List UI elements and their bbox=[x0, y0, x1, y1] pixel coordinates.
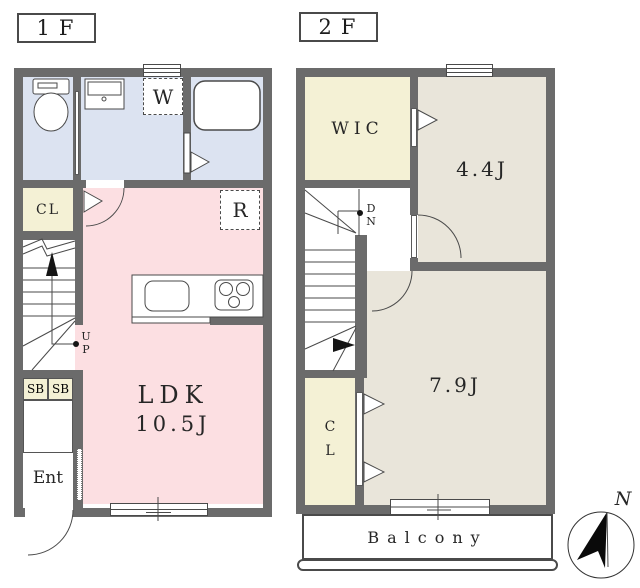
wic-door-leaf bbox=[411, 108, 417, 147]
balcony-edge bbox=[297, 559, 558, 571]
closet-1f-label: CL bbox=[23, 188, 73, 231]
room-toilet bbox=[23, 77, 73, 180]
room-ldk bbox=[83, 188, 263, 504]
wall-segment bbox=[355, 235, 367, 378]
compass-north-label: N bbox=[608, 486, 638, 512]
bedroom-large-area-label: 7.9J bbox=[364, 365, 546, 405]
wall-segment bbox=[14, 180, 86, 188]
wall-segment bbox=[296, 68, 305, 514]
wall-segment bbox=[546, 68, 555, 514]
entrance-cabinet bbox=[23, 400, 73, 453]
compass-icon bbox=[568, 512, 634, 578]
window-1f-top bbox=[143, 64, 181, 77]
wall-segment bbox=[263, 68, 272, 517]
ldk-area-label: 10.5J bbox=[83, 410, 263, 438]
wall-segment bbox=[410, 188, 418, 215]
wic-label: WIC bbox=[305, 77, 410, 180]
floor2-title: 2F bbox=[299, 12, 378, 42]
wall-kitchen-stub bbox=[210, 315, 263, 325]
entrance-step-strip bbox=[77, 449, 82, 500]
wall-segment bbox=[75, 240, 83, 325]
wall-segment bbox=[296, 370, 355, 378]
closet-2f-label: CL bbox=[305, 398, 355, 488]
wall-segment bbox=[14, 68, 23, 517]
toilet-sliding-door bbox=[75, 91, 79, 175]
floor1-title: 1F bbox=[17, 13, 96, 43]
shoe-box-b: SB bbox=[48, 378, 73, 400]
stairs-down-label: DN bbox=[363, 198, 379, 232]
refrigerator-space: R bbox=[220, 190, 260, 230]
washroom-door-opening bbox=[86, 180, 124, 188]
bedroom-small-area-label: 4.4J bbox=[418, 150, 546, 188]
wall-segment bbox=[410, 262, 555, 271]
wall-segment bbox=[14, 370, 83, 378]
ldk-name-label: LDK bbox=[83, 380, 263, 410]
wall-segment bbox=[183, 77, 191, 180]
window-1f-bottom bbox=[110, 503, 208, 516]
floor-plan: 1F 2F SB SB W bbox=[0, 0, 640, 588]
entrance-label: Ent bbox=[23, 452, 73, 504]
wall-segment bbox=[124, 180, 272, 188]
window-2f-top bbox=[446, 64, 493, 77]
closet-2f-door-leaf bbox=[356, 392, 363, 486]
washing-machine-space: W bbox=[143, 78, 183, 115]
stairwell-2f bbox=[305, 188, 358, 370]
stairs-up-label: UP bbox=[78, 326, 94, 360]
shoe-box-a: SB bbox=[23, 378, 48, 400]
room-bathroom bbox=[191, 77, 263, 180]
window-2f-balcony bbox=[390, 499, 490, 515]
wall-segment bbox=[23, 231, 83, 240]
entrance-door-opening bbox=[25, 508, 73, 517]
stairwell-1f bbox=[23, 240, 75, 370]
wall-segment bbox=[296, 68, 555, 77]
balcony-label: Balcony bbox=[302, 514, 553, 560]
bedroom-small-door-leaf bbox=[411, 215, 417, 258]
wall-segment bbox=[296, 180, 418, 188]
